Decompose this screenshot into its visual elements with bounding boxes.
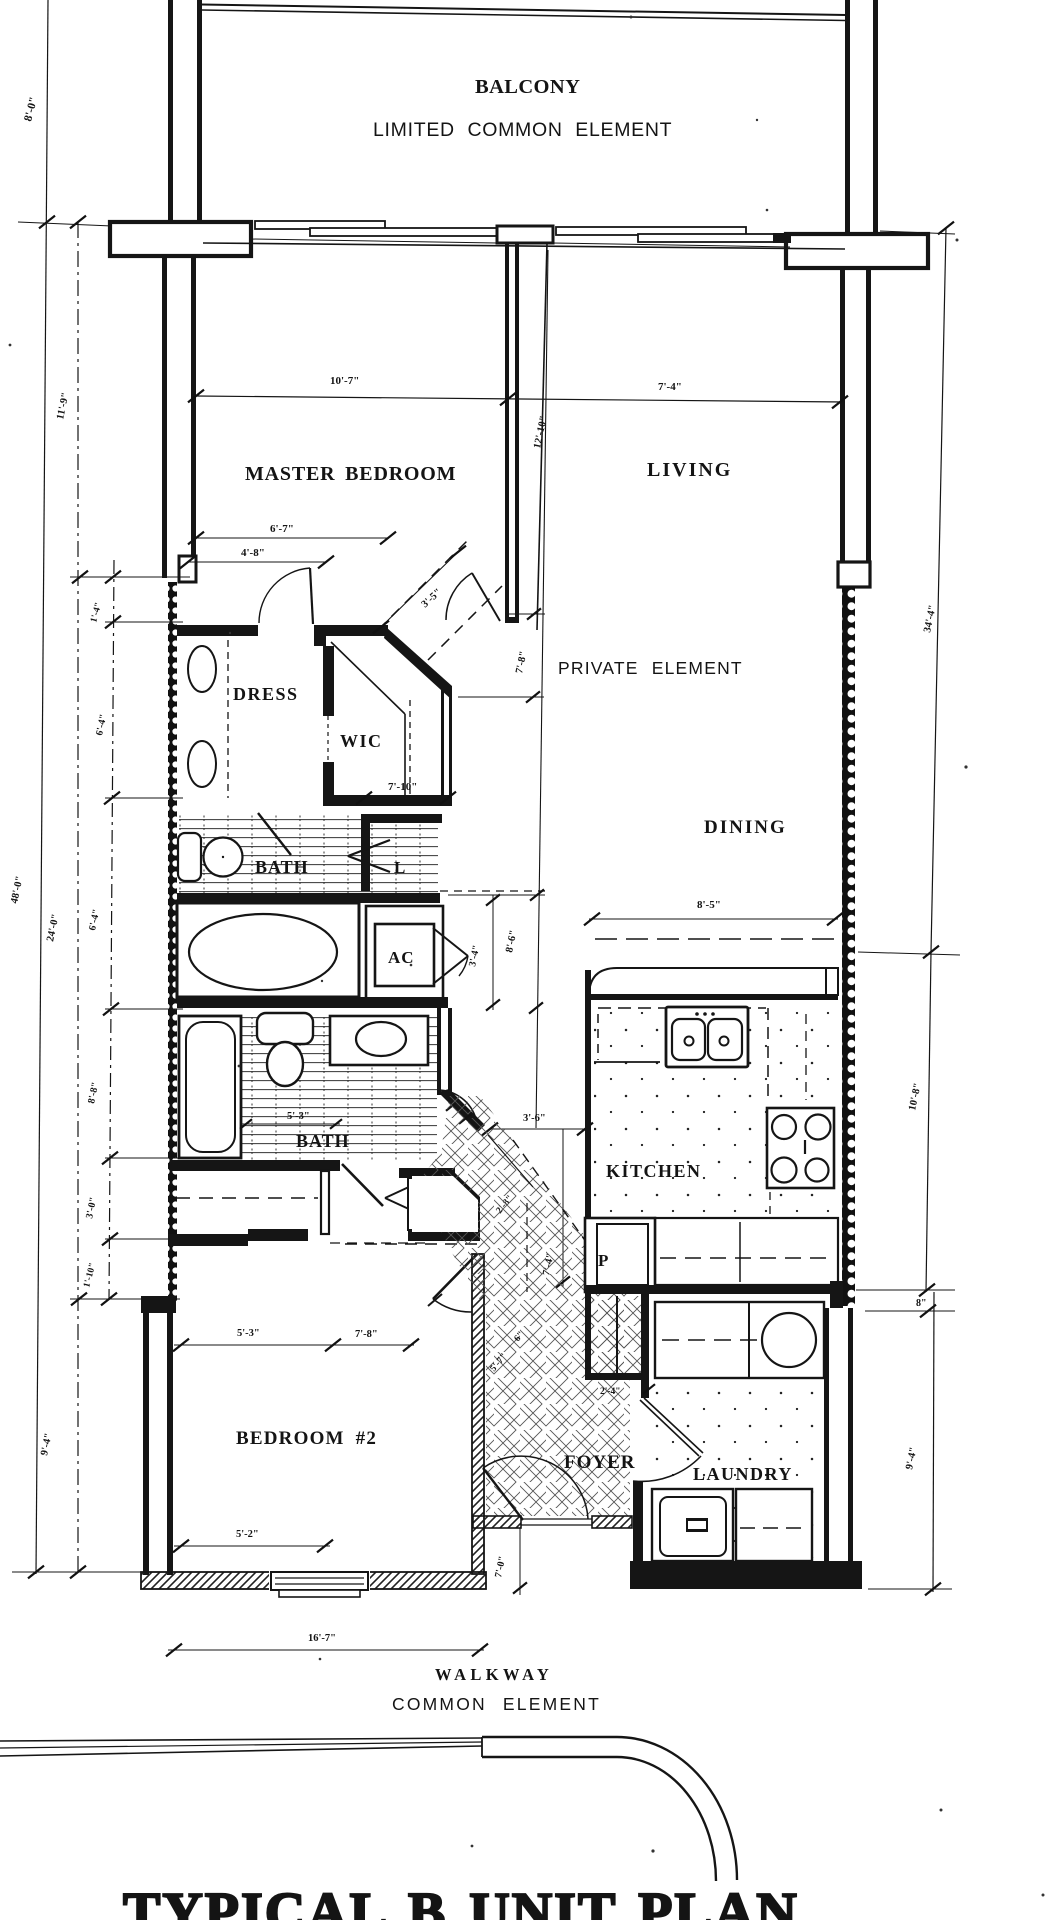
svg-text:TYPICAL B UNIT PLAN: TYPICAL B UNIT PLAN bbox=[123, 1882, 799, 1920]
svg-text:3'-6": 3'-6" bbox=[523, 1113, 546, 1124]
svg-text:PRIVATE ELEMENT: PRIVATE ELEMENT bbox=[558, 658, 743, 678]
svg-text:5'-2": 5'-2" bbox=[236, 1529, 259, 1540]
svg-text:8'-5": 8'-5" bbox=[697, 899, 721, 911]
svg-text:7'-10": 7'-10" bbox=[388, 781, 417, 793]
svg-text:BATH: BATH bbox=[255, 857, 309, 877]
svg-text:L: L bbox=[394, 858, 405, 877]
svg-text:10'-7": 10'-7" bbox=[330, 375, 359, 387]
svg-text:5'-3": 5'-3" bbox=[237, 1328, 260, 1339]
svg-text:2'-4": 2'-4" bbox=[600, 1387, 621, 1397]
svg-text:5'-3": 5'-3" bbox=[287, 1111, 310, 1122]
svg-text:WALKWAY: WALKWAY bbox=[435, 1665, 553, 1684]
svg-text:7'-4": 7'-4" bbox=[658, 381, 682, 393]
svg-text:LAUNDRY: LAUNDRY bbox=[693, 1464, 793, 1484]
svg-text:BATH: BATH bbox=[296, 1131, 350, 1151]
svg-text:FOYER: FOYER bbox=[564, 1452, 636, 1473]
svg-text:WIC: WIC bbox=[340, 731, 383, 751]
svg-text:6'-7": 6'-7" bbox=[270, 523, 294, 535]
svg-text:8": 8" bbox=[916, 1298, 927, 1309]
svg-text:LIMITED COMMON ELEMENT: LIMITED COMMON ELEMENT bbox=[373, 119, 672, 141]
svg-text:7'-8": 7'-8" bbox=[355, 1329, 378, 1340]
svg-text:DINING: DINING bbox=[704, 817, 787, 838]
svg-text:COMMON ELEMENT: COMMON ELEMENT bbox=[392, 1694, 601, 1714]
svg-text:P: P bbox=[598, 1251, 608, 1270]
svg-text:BALCONY: BALCONY bbox=[475, 76, 580, 98]
svg-text:LIVING: LIVING bbox=[647, 459, 732, 481]
svg-text:BEDROOM #2: BEDROOM #2 bbox=[236, 1428, 377, 1449]
svg-text:4'-8": 4'-8" bbox=[241, 547, 265, 559]
svg-text:DRESS: DRESS bbox=[233, 684, 299, 704]
svg-text:16'-7": 16'-7" bbox=[308, 1633, 336, 1644]
svg-text:MASTER BEDROOM: MASTER BEDROOM bbox=[245, 463, 456, 485]
svg-text:KITCHEN: KITCHEN bbox=[606, 1161, 702, 1181]
